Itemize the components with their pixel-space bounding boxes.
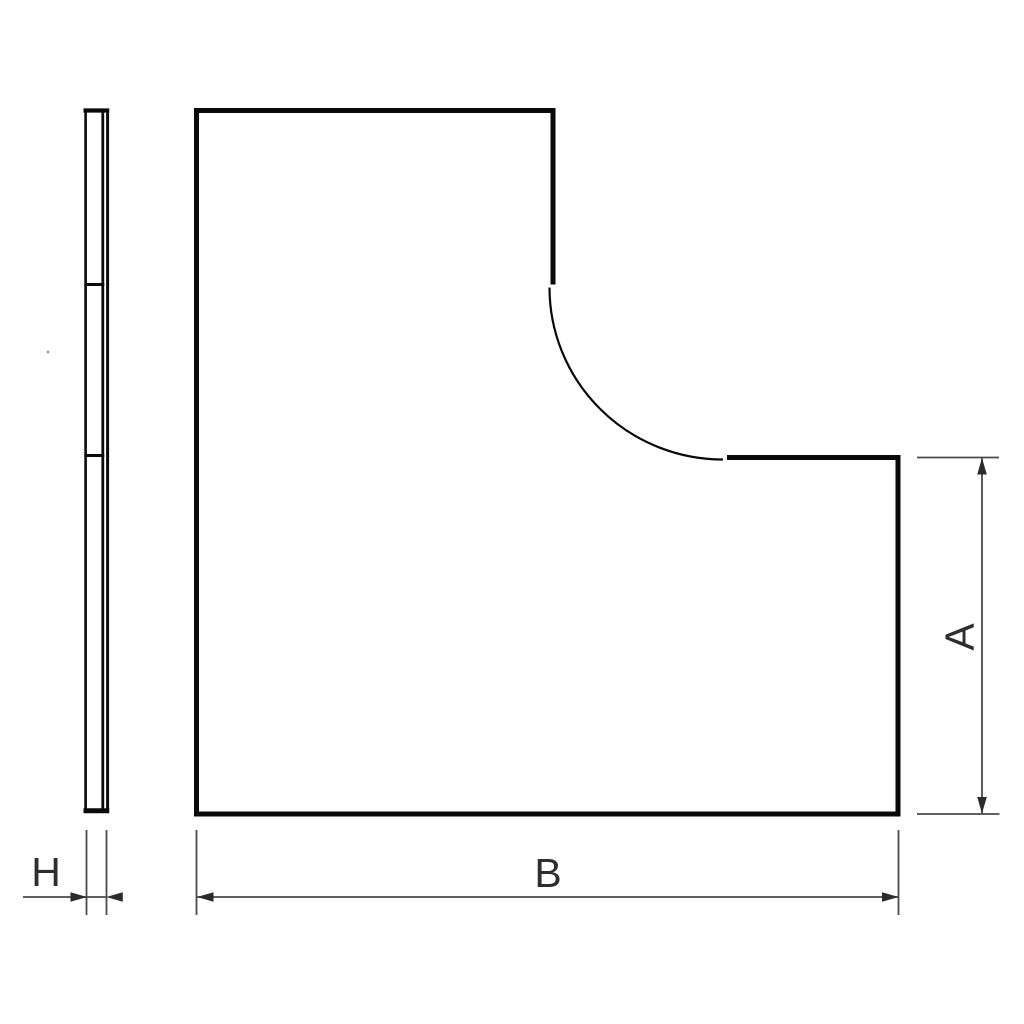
h-arrow-left-icon: [106, 892, 123, 902]
dimension-labels: H B A: [31, 623, 982, 896]
bend-cover-plan-view: [197, 111, 899, 815]
b-arrow-left-icon: [197, 892, 214, 902]
a-arrow-down-icon: [977, 797, 987, 814]
artifact-dot: [47, 351, 49, 353]
inner-corner-arc: [550, 288, 724, 460]
dimension-label-b: B: [534, 850, 561, 896]
side-profile-view: [84, 109, 110, 813]
dimension-arrowheads: [71, 458, 987, 902]
h-arrow-right-icon: [71, 892, 88, 902]
drawing-canvas: H B A: [0, 0, 1024, 1024]
technical-drawing: H B A: [0, 0, 1024, 1024]
a-arrow-up-icon: [977, 458, 987, 475]
dimension-lines: [23, 458, 1000, 916]
plan-outline: [197, 111, 899, 815]
b-arrow-right-icon: [882, 892, 899, 902]
dimension-label-h: H: [31, 849, 61, 895]
dimension-label-a: A: [937, 623, 983, 651]
